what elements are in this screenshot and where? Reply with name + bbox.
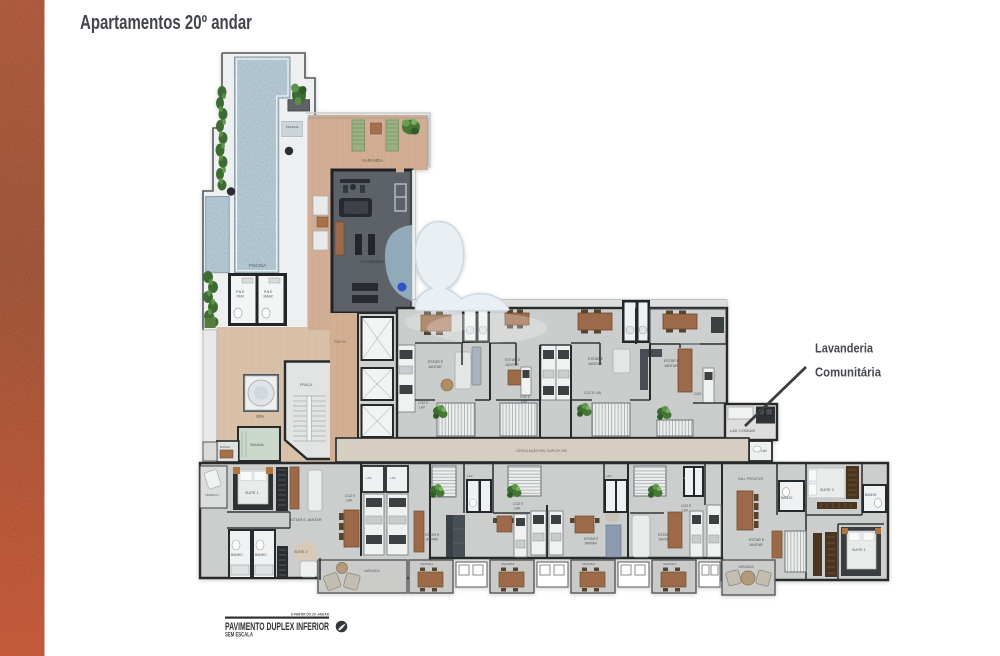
svg-text:JANTAR: JANTAR: [664, 364, 678, 368]
svg-text:COZ E: COZ E: [345, 494, 356, 498]
svg-text:VARANDA: VARANDA: [420, 562, 433, 566]
svg-text:JANTAR: JANTAR: [749, 543, 763, 547]
svg-text:LAV.: LAV.: [390, 476, 396, 480]
svg-text:PRAINHA: PRAINHA: [286, 125, 299, 129]
svg-text:LAV. COMUM: LAV. COMUM: [730, 428, 755, 433]
svg-text:BANHO: BANHO: [255, 553, 267, 557]
svg-text:COZ E LAV: COZ E LAV: [584, 391, 602, 395]
svg-text:VARANDA: VARANDA: [582, 562, 595, 566]
svg-text:SUITE 2: SUITE 2: [294, 550, 308, 554]
svg-text:ESTAR E: ESTAR E: [505, 358, 521, 362]
svg-text:SUITE 2: SUITE 2: [820, 488, 834, 492]
svg-text:COZ E: COZ E: [520, 395, 531, 399]
svg-text:ACADEMIA: ACADEMIA: [360, 259, 384, 264]
svg-text:MASC: MASC: [264, 295, 274, 299]
svg-text:LAV.: LAV.: [606, 474, 612, 478]
svg-text:PRAÇA: PRAÇA: [300, 383, 313, 387]
svg-text:ESTAR E: ESTAR E: [428, 360, 444, 364]
svg-text:SEM ESCALA: SEM ESCALA: [225, 632, 253, 639]
svg-text:COZ E: COZ E: [681, 504, 692, 508]
svg-text:LAV.: LAV.: [346, 499, 353, 503]
svg-text:TERRAÇO: TERRAÇO: [205, 493, 219, 497]
svg-text:VARANDA: VARANDA: [362, 158, 383, 163]
svg-text:VARANDA: VARANDA: [364, 569, 380, 573]
svg-text:LAV: LAV: [419, 406, 426, 410]
svg-text:HALL PRIVATIVO: HALL PRIVATIVO: [738, 477, 764, 481]
svg-text:ESTAR E: ESTAR E: [584, 537, 599, 541]
svg-text:ESTAR E: ESTAR E: [588, 357, 604, 361]
svg-text:SAUNA: SAUNA: [250, 442, 264, 447]
svg-text:PISCINA: PISCINA: [249, 263, 266, 268]
svg-text:PISO 20: PISO 20: [334, 340, 346, 344]
svg-text:ESTAR E: ESTAR E: [425, 533, 440, 537]
svg-text:JANTAR: JANTAR: [584, 542, 597, 546]
svg-text:BANHO: BANHO: [781, 496, 793, 500]
svg-text:P.N.E: P.N.E: [264, 290, 273, 294]
svg-text:ESTAR E: ESTAR E: [664, 359, 680, 363]
svg-text:CIRCULAÇÃO PAV. DUPLEX INF.: CIRCULAÇÃO PAV. DUPLEX INF.: [516, 448, 568, 453]
svg-text:JANTAR: JANTAR: [505, 363, 519, 367]
svg-text:ESTAR E JANTAR: ESTAR E JANTAR: [290, 518, 322, 522]
svg-text:JANTAR: JANTAR: [425, 538, 438, 542]
svg-text:VARANDA: VARANDA: [663, 562, 676, 566]
svg-text:SUITE 1: SUITE 1: [852, 548, 866, 552]
svg-text:LAV: LAV: [684, 476, 689, 480]
svg-text:VARANDA: VARANDA: [501, 562, 514, 566]
svg-text:LAV: LAV: [761, 449, 768, 453]
svg-text:BANHO: BANHO: [231, 553, 243, 557]
svg-text:LAV.: LAV.: [366, 476, 372, 480]
svg-text:Comunitária: Comunitária: [815, 365, 882, 380]
svg-text:VARANDA: VARANDA: [738, 565, 754, 569]
svg-text:LAV.: LAV.: [467, 474, 473, 478]
svg-text:Apartamentos 20º andar: Apartamentos 20º andar: [80, 11, 252, 34]
svg-text:JANTAR: JANTAR: [428, 365, 442, 369]
svg-text:LAV.: LAV.: [514, 507, 521, 511]
svg-text:A PARTIR DO 20º ANDAR: A PARTIR DO 20º ANDAR: [291, 613, 330, 617]
svg-text:COZ E: COZ E: [418, 401, 429, 405]
svg-text:Lavanderia: Lavanderia: [815, 341, 874, 356]
svg-text:SPA: SPA: [256, 414, 264, 419]
svg-text:ESTAR E: ESTAR E: [749, 538, 765, 542]
svg-text:FEM: FEM: [237, 295, 244, 299]
svg-text:COZ E: COZ E: [513, 502, 524, 506]
svg-text:BANHO: BANHO: [865, 493, 877, 497]
svg-text:P.N.E: P.N.E: [236, 290, 245, 294]
svg-text:DUCHA: DUCHA: [220, 445, 230, 449]
svg-text:LAV.: LAV.: [682, 509, 689, 513]
svg-text:SUITE 1: SUITE 1: [245, 491, 259, 495]
svg-text:COZ: COZ: [694, 392, 701, 396]
